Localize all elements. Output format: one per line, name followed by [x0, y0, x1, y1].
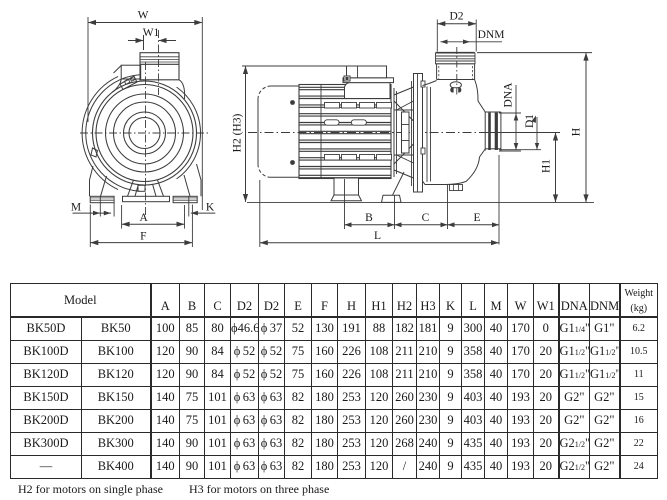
svg-text:D2: D2 — [449, 11, 463, 23]
svg-text:B: B — [365, 212, 373, 224]
svg-text:D1: D1 — [524, 114, 536, 128]
svg-text:L: L — [374, 230, 381, 242]
svg-text:DNM: DNM — [478, 29, 505, 41]
svg-text:A: A — [140, 212, 149, 224]
svg-text:M: M — [71, 202, 81, 214]
svg-text:H1: H1 — [541, 159, 553, 173]
svg-text:F: F — [140, 230, 146, 242]
svg-text:W1: W1 — [143, 27, 160, 39]
svg-text:W: W — [138, 10, 149, 22]
svg-text:C: C — [422, 212, 430, 224]
svg-text:E: E — [473, 212, 480, 224]
svg-text:H: H — [569, 127, 583, 136]
svg-text:DNA: DNA — [503, 82, 515, 108]
svg-text:H2 (H3): H2 (H3) — [232, 114, 244, 153]
svg-text:K: K — [206, 202, 215, 214]
